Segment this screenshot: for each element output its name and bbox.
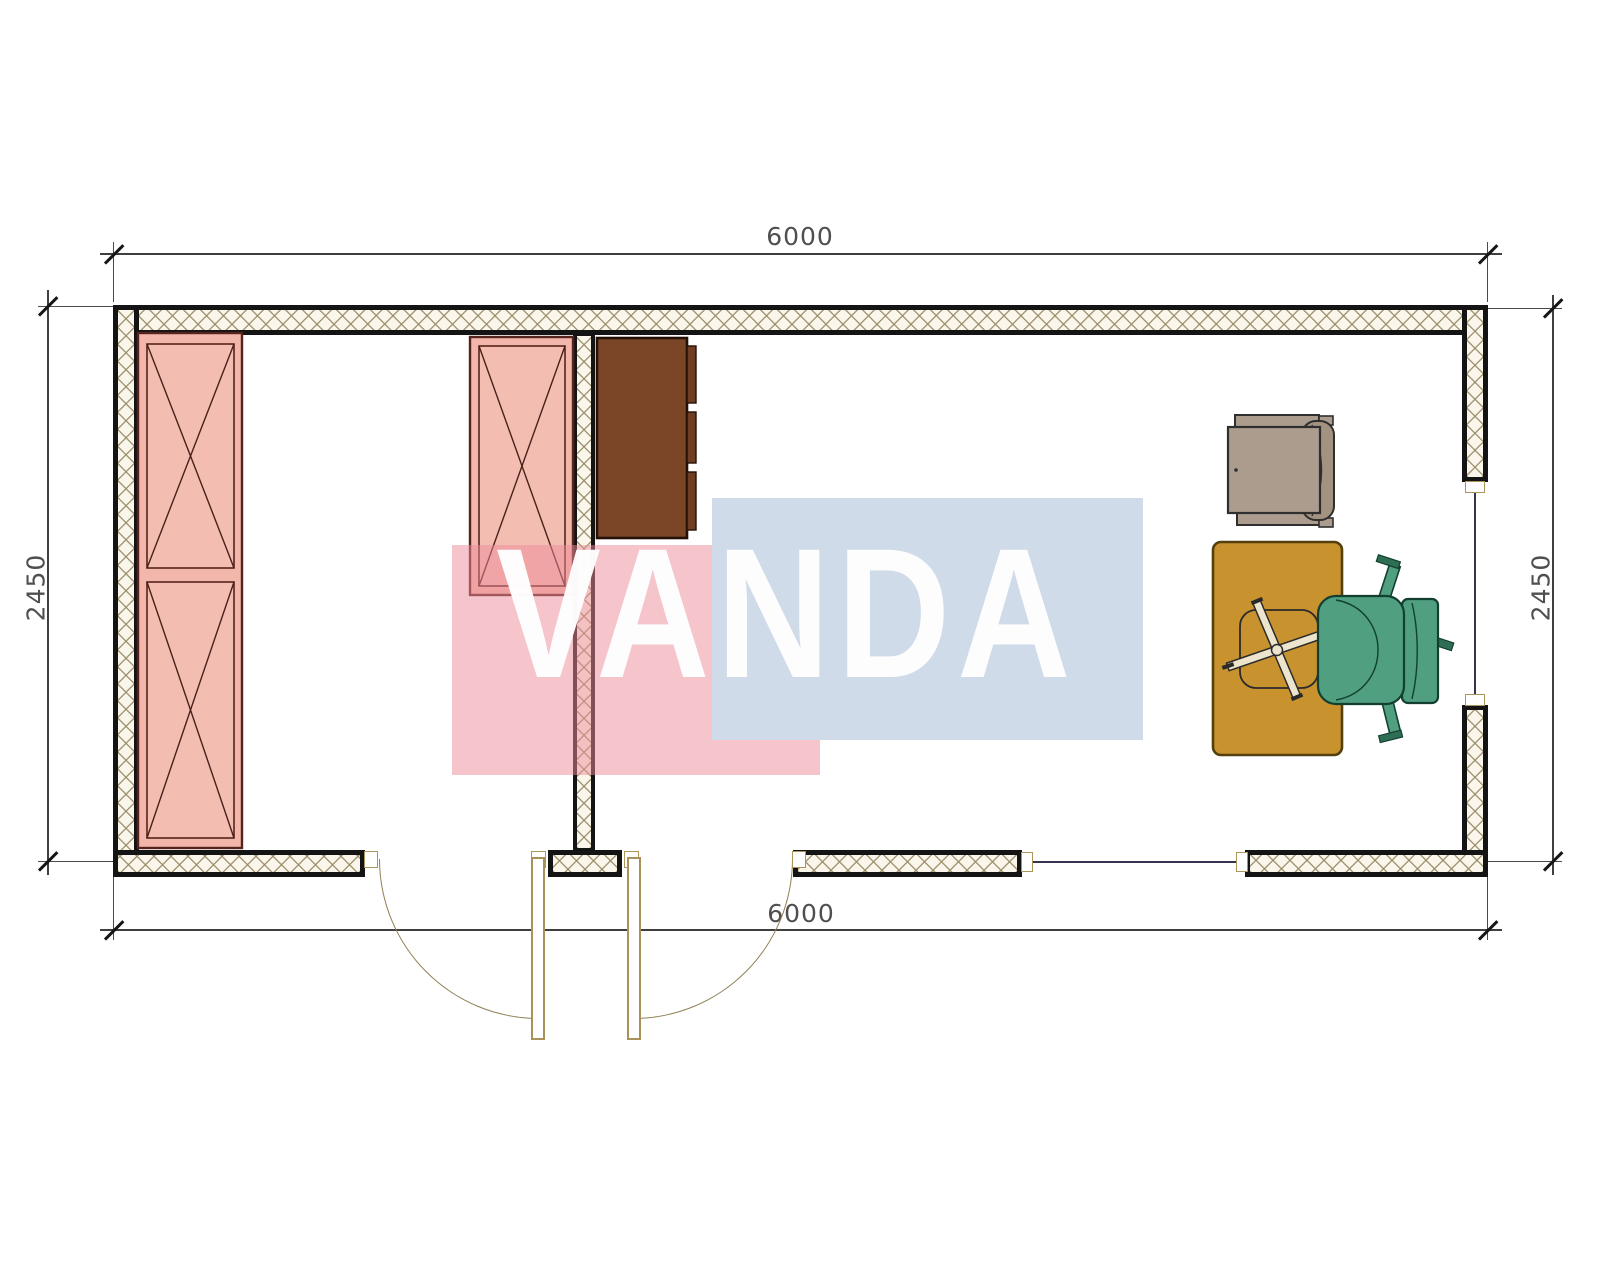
floor-plan: 6000 6000 2450 2450 (0, 0, 1600, 1280)
watermark-logo-text: VANDA (496, 522, 1077, 707)
brown-cabinet (597, 338, 696, 538)
armchair (1228, 415, 1334, 527)
double-wardrobe-left (138, 333, 242, 848)
